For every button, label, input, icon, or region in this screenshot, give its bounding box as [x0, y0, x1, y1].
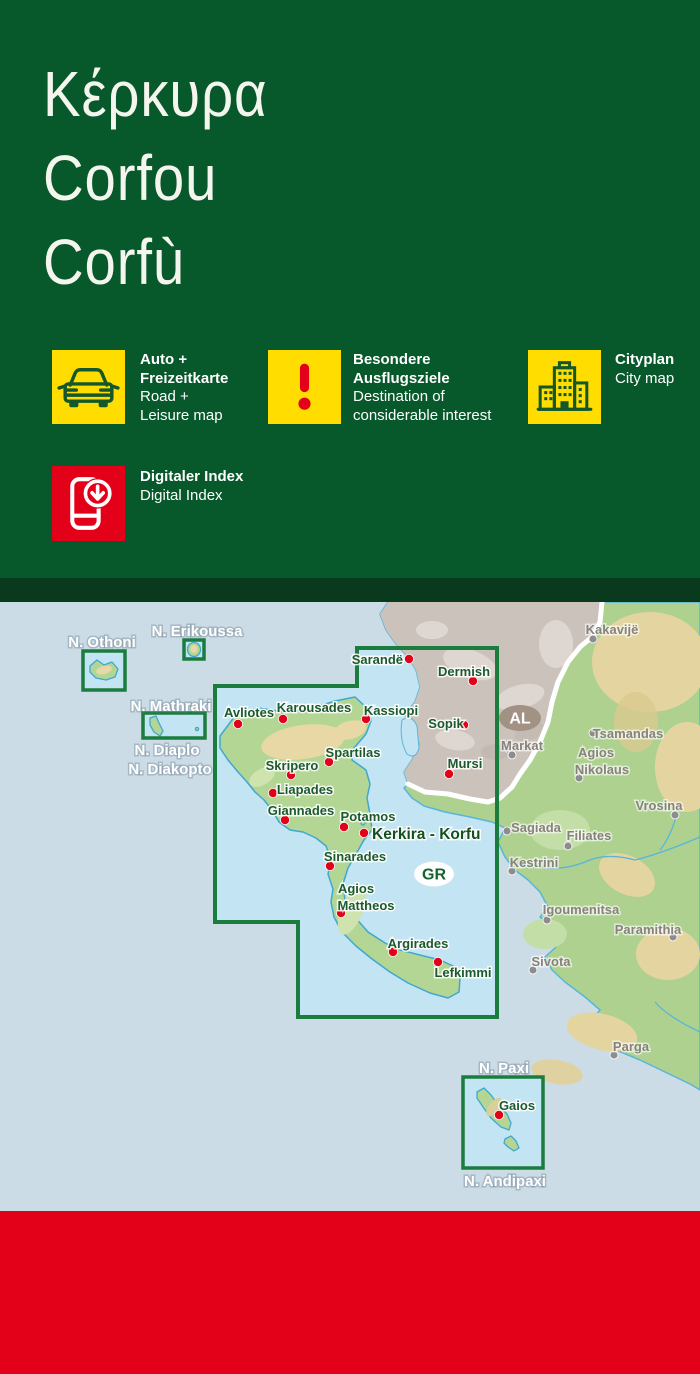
island-label-n-erikoussa: N. Erikoussa	[152, 623, 244, 640]
map-label-liapades: Liapades	[277, 782, 333, 797]
map-label-igoumenitsa: Igoumenitsa	[543, 902, 620, 917]
map-label-paramithia: Paramithia	[615, 922, 682, 937]
map-dot-karousades	[278, 714, 287, 723]
island-label-n-paxi: N. Paxi	[479, 1060, 529, 1077]
car-icon	[52, 350, 125, 424]
feature-line: Destination of	[353, 388, 543, 407]
island-label-n-andipaxi: N. Andipaxi	[464, 1173, 546, 1190]
map-dot-igoumenitsa	[543, 916, 551, 924]
cover-panel: Κέρκυρα Corfou Corfù Auto + Freizeitkart…	[0, 0, 700, 578]
map-label-agios-mattheos: Agios	[338, 881, 374, 896]
map-label-vrosina: Vrosina	[636, 798, 684, 813]
divider-strip	[0, 578, 700, 602]
island-label-n-mathraki: N. Mathraki	[131, 698, 212, 715]
map-label-gaios: Gaios	[499, 1098, 535, 1113]
title-italian: Corfù	[43, 220, 267, 304]
feature-line: City map	[615, 370, 700, 389]
map-label-sarand: Sarandë	[352, 652, 403, 667]
map-label-mursi: Mursi	[448, 756, 483, 771]
feature-line: Digitaler Index	[140, 468, 330, 487]
map-label-kerkira-korfu: Kerkira - Korfu	[372, 826, 481, 843]
coverage-map: ALGR SarandëDermishKassiopiSopikMursiAvl…	[0, 602, 700, 1211]
title-greek: Κέρκυρα	[43, 52, 267, 136]
map-label-kassiopi: Kassiopi	[364, 703, 418, 718]
map-dot-avliotes	[233, 719, 242, 728]
map-label-parga: Parga	[613, 1039, 650, 1054]
map-label-filiates: Filiates	[567, 828, 612, 843]
exclamation-icon	[268, 350, 341, 424]
country-badge-label-gr: GR	[422, 867, 446, 884]
feature-line: Digital Index	[140, 487, 330, 506]
map-label-dermish: Dermish	[438, 664, 490, 679]
island-label-n-diaplo: N. Diaplo	[134, 742, 199, 759]
map-cover-back: Κέρκυρα Corfou Corfù Auto + Freizeitkart…	[0, 0, 700, 1374]
feature-line: Besondere	[353, 351, 543, 370]
footer-panel: 9 783707 909562 freytagberndt.com	[0, 1211, 700, 1374]
title-french: Corfou	[43, 136, 267, 220]
map-label-sivota: Sivota	[531, 954, 571, 969]
map-label-sinarades: Sinarades	[324, 849, 386, 864]
feature-cityplan: Cityplan City map	[615, 351, 700, 388]
feature-line: Cityplan	[615, 351, 700, 370]
map-dot-filiates	[564, 842, 572, 850]
map-label-tsamandas: Tsamandas	[593, 726, 664, 741]
phone-download-icon	[52, 466, 125, 541]
island-label-n-diakopto: N. Diakopto	[128, 761, 211, 778]
map-label-agios-mattheos: Mattheos	[337, 898, 394, 913]
map-dot-sagiada	[503, 827, 511, 835]
feature-digital-index: Digitaler Index Digital Index	[140, 468, 330, 505]
island-label-n-othoni: N. Othoni	[68, 634, 136, 651]
map-label-argirades: Argirades	[388, 936, 449, 951]
map-label-avliotes: Avliotes	[224, 705, 274, 720]
map-dot-sarand	[404, 654, 413, 663]
map-label-sagiada: Sagiada	[511, 820, 562, 835]
map-label-karousades: Karousades	[277, 700, 351, 715]
map-dot-kerkira-korfu	[359, 828, 368, 837]
map-label-lefkimmi: Lefkimmi	[434, 965, 491, 980]
map-label-skripero: Skripero	[266, 758, 319, 773]
feature-line: considerable interest	[353, 407, 543, 426]
map-label-giannades: Giannades	[268, 803, 334, 818]
map-label-kestrini: Kestrini	[510, 855, 558, 870]
buildings-icon	[528, 350, 601, 424]
map-label-markat: Markat	[501, 738, 544, 753]
country-badge-label-al: AL	[509, 711, 531, 728]
page-title: Κέρκυρα Corfou Corfù	[43, 52, 267, 304]
map-label-spartilas: Spartilas	[326, 745, 381, 760]
map-label-agios-nikolaus: Agios	[578, 745, 614, 760]
map-label-potamos: Potamos	[341, 809, 396, 824]
feature-highlights: Besondere Ausflugsziele Destination of c…	[353, 351, 543, 425]
map-label-agios-nikolaus: Nikolaus	[575, 762, 629, 777]
map-label-sopik: Sopik	[428, 716, 464, 731]
feature-line: Ausflugsziele	[353, 370, 543, 389]
map-label-kakavij: Kakavijë	[586, 622, 639, 637]
map-canvas: ALGR SarandëDermishKassiopiSopikMursiAvl…	[0, 602, 700, 1211]
